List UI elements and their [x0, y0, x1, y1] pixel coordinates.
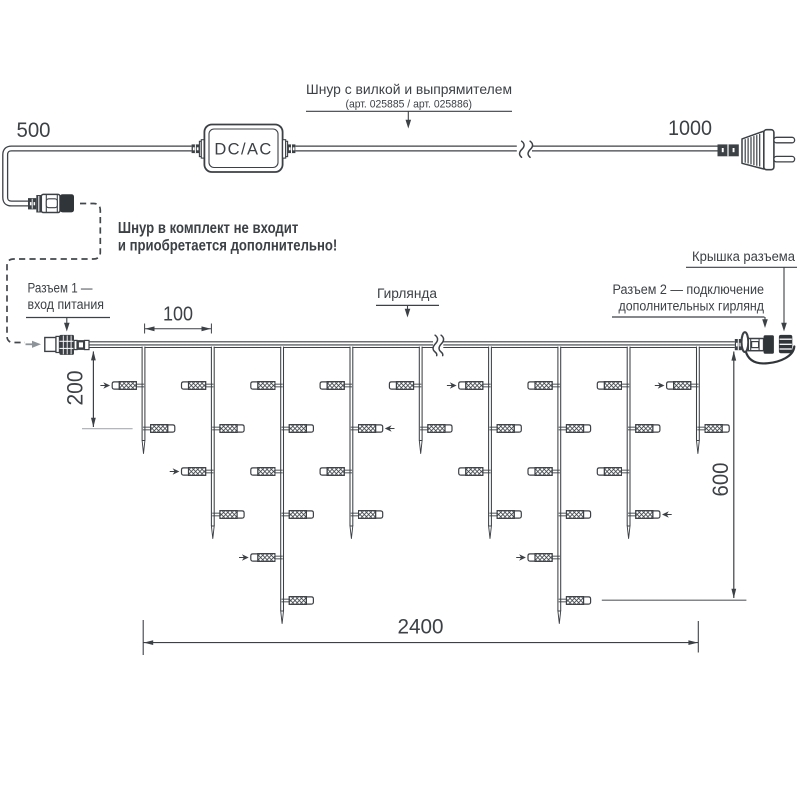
- svg-text:Шнур в комплект не входит: Шнур в комплект не входит: [118, 220, 299, 237]
- svg-text:Разъем 1 —: Разъем 1 —: [28, 281, 94, 297]
- svg-text:Гирлянда: Гирлянда: [377, 286, 437, 302]
- svg-text:100: 100: [163, 302, 193, 325]
- svg-text:Крышка разъема: Крышка разъема: [692, 249, 795, 265]
- svg-text:Шнур с вилкой и выпрямителем: Шнур с вилкой и выпрямителем: [306, 82, 512, 98]
- svg-text:(арт. 025885 / арт. 025886): (арт. 025885 / арт. 025886): [346, 99, 473, 111]
- svg-text:500: 500: [17, 117, 51, 142]
- svg-text:2400: 2400: [398, 614, 444, 639]
- svg-text:600: 600: [708, 463, 733, 497]
- svg-text:Разъем 2 — подключение: Разъем 2 — подключение: [613, 282, 765, 298]
- svg-text:вход питания: вход питания: [28, 297, 105, 313]
- svg-text:DC/AC: DC/AC: [214, 141, 272, 159]
- svg-text:1000: 1000: [668, 115, 712, 140]
- svg-text:и приобретается дополнительно!: и приобретается дополнительно!: [118, 238, 337, 255]
- svg-text:200: 200: [63, 371, 88, 406]
- svg-text:дополнительных гирлянд: дополнительных гирлянд: [619, 298, 765, 314]
